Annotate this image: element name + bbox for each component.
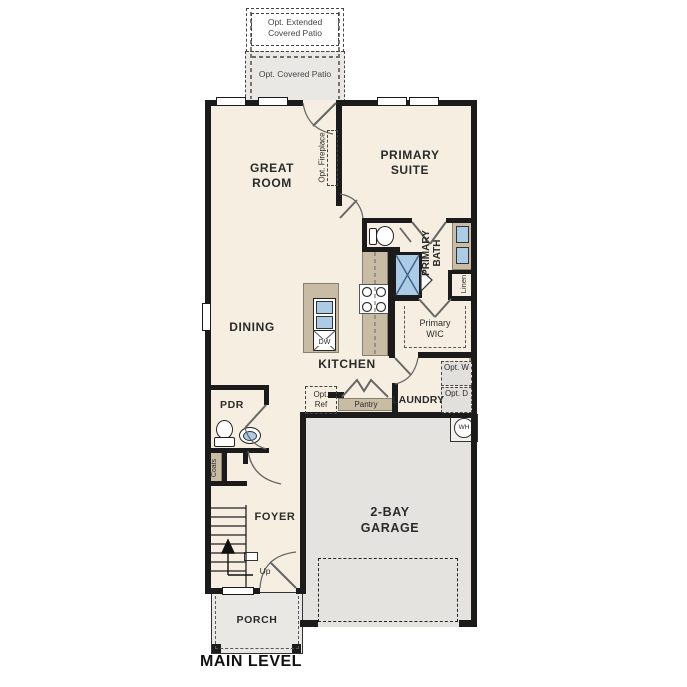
window [409, 97, 439, 106]
island-sink-basin-top [316, 301, 333, 314]
wall [388, 252, 395, 356]
wall [205, 100, 211, 594]
dining-label: DINING [222, 320, 282, 335]
wall [300, 620, 318, 627]
coats-label: Coats [210, 453, 220, 483]
floor-plan: Opt. Extended Covered Patio Opt. Covered… [0, 0, 687, 687]
water-heater-label: WH [451, 424, 477, 432]
stove [359, 284, 390, 314]
wall [205, 588, 222, 594]
window [258, 97, 288, 106]
foyer-label: FOYER [245, 511, 305, 525]
opt-fireplace-box [327, 130, 338, 186]
primary-wic-label: Primary WIC [415, 318, 455, 341]
window [202, 303, 211, 331]
porch-label: PORCH [228, 614, 286, 627]
wall [418, 352, 477, 358]
wall [300, 412, 306, 594]
garage-label: 2-BAY GARAGE [350, 505, 430, 536]
wall [205, 385, 269, 390]
wall [395, 296, 419, 301]
wall [243, 452, 248, 464]
window [377, 97, 407, 106]
primary-suite-label: PRIMARY SUITE [375, 148, 445, 178]
stair-landing [244, 552, 258, 561]
up-label: Up [254, 566, 276, 577]
toilet-bowl-primary [376, 226, 394, 246]
wall [459, 620, 477, 627]
wall [296, 588, 305, 594]
main-level-title: MAIN LEVEL [196, 652, 306, 672]
wall [389, 352, 395, 358]
laundry-label: LAUNDRY [392, 394, 442, 407]
island-sink-basin-bottom [316, 316, 333, 329]
window [222, 587, 254, 595]
kitchen-label: KITCHEN [316, 357, 378, 372]
toilet-tank-pdr [214, 437, 235, 447]
linen-label: Linen [459, 268, 469, 300]
opt-extended-patio-label: Opt. Extended Covered Patio [252, 17, 338, 38]
shower [393, 252, 422, 298]
dishwasher-label: DW [314, 339, 335, 346]
opt-covered-patio-label: Opt. Covered Patio [248, 69, 342, 80]
wall [264, 385, 269, 405]
wall [446, 218, 477, 223]
opt-fireplace-label: Opt. Fireplace [317, 127, 328, 189]
wall [254, 588, 260, 594]
opt-dryer-label: Opt. D [444, 389, 469, 399]
primary-bath-label: PRIMARY BATH [420, 225, 444, 281]
vanity-sink-top [456, 226, 469, 243]
window [216, 97, 246, 106]
pdr-label: PDR [216, 399, 248, 412]
pantry-label: Pantry [340, 400, 392, 410]
wall [362, 218, 412, 223]
garage-door-outline [318, 558, 458, 622]
great-room-label: GREAT ROOM [237, 161, 307, 191]
vanity-sink-bottom [456, 247, 469, 264]
pdr-sink-basin [243, 431, 257, 441]
opt-ref-label: Opt. Ref [307, 390, 335, 410]
opt-washer-label: Opt. W [444, 363, 469, 373]
